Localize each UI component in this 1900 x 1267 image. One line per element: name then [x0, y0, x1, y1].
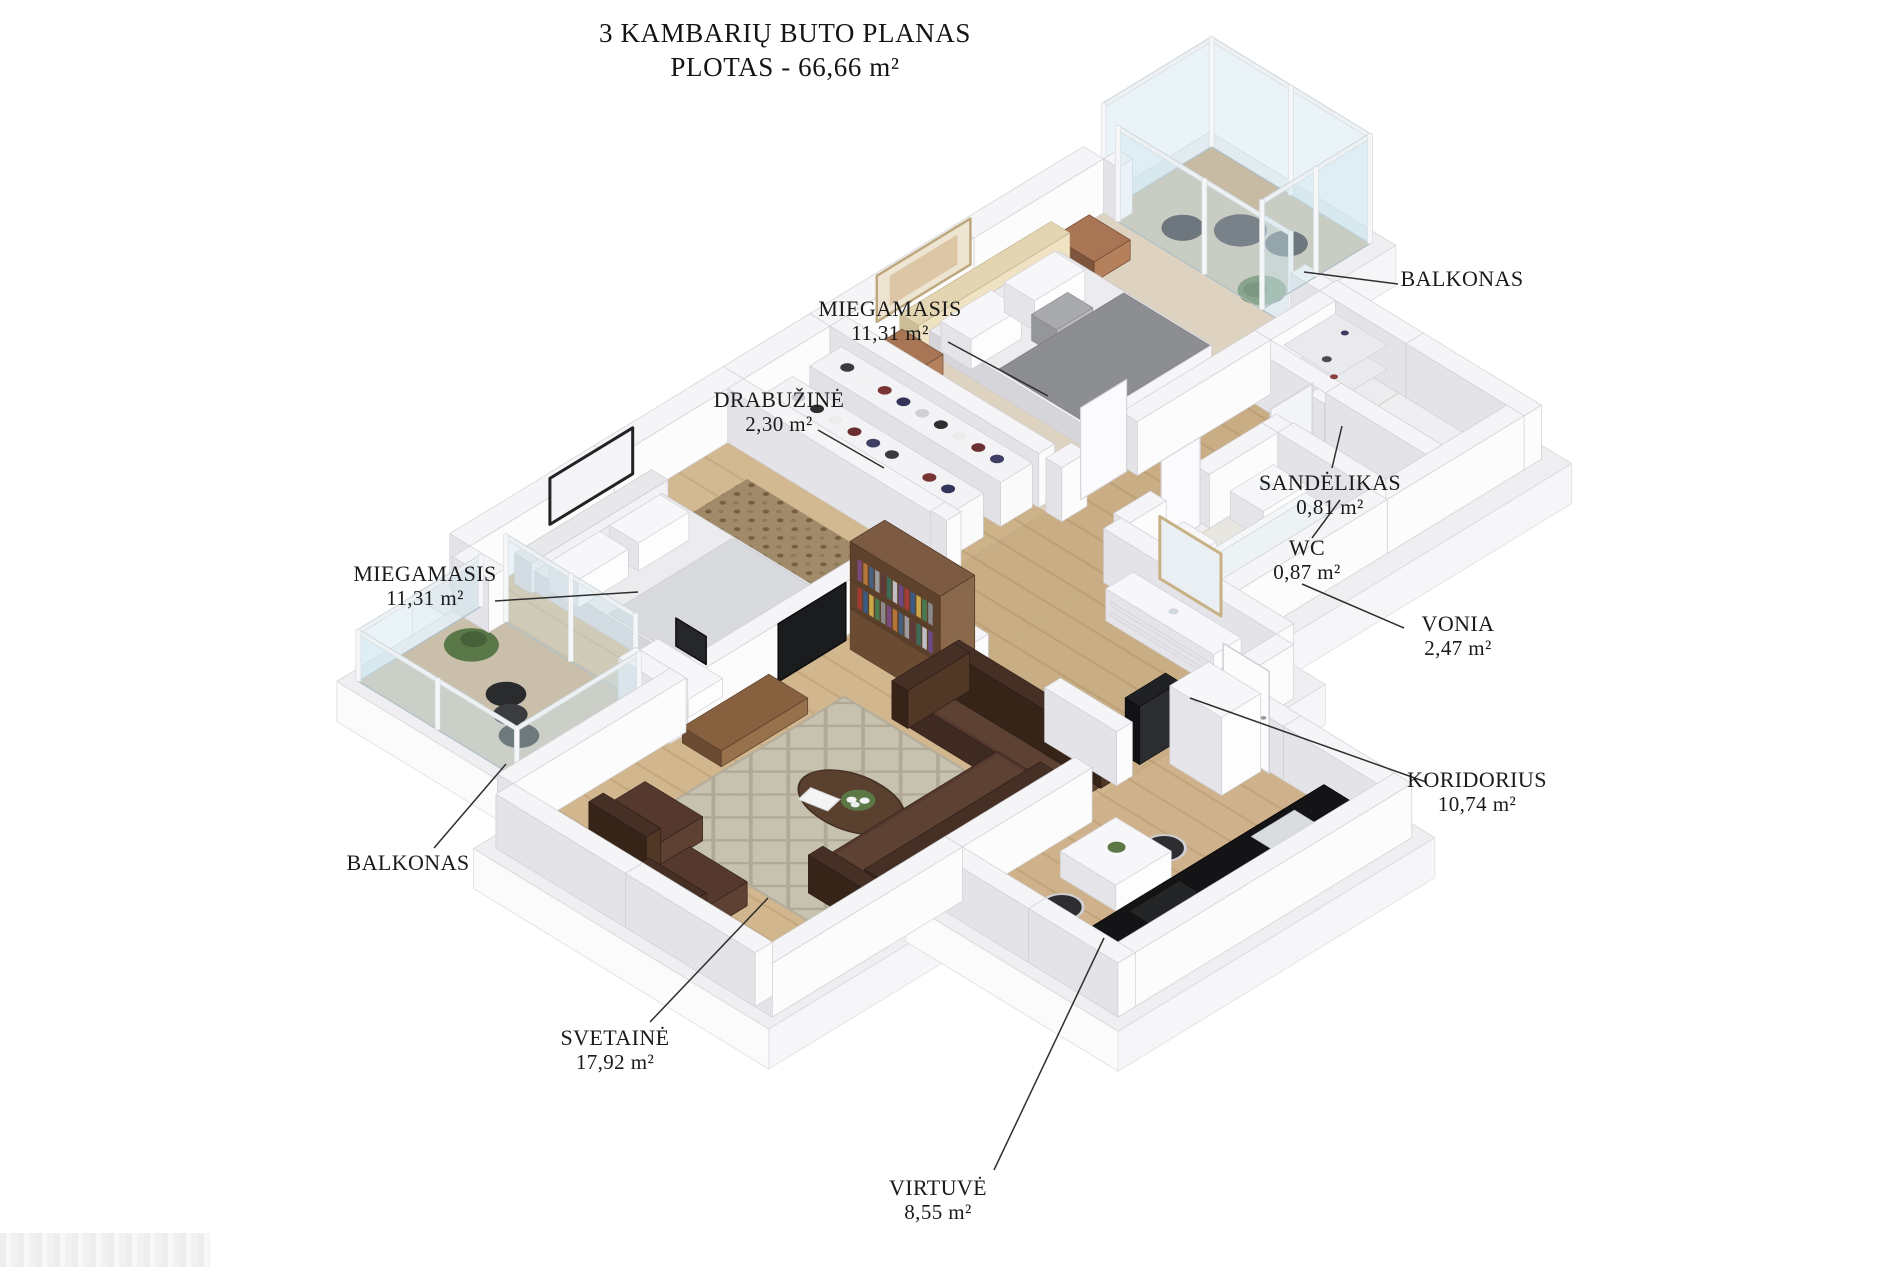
room-area: 11,31 m² [760, 321, 1020, 346]
room-name: BALKONAS [1332, 266, 1592, 291]
room-area: 10,74 m² [1347, 792, 1607, 817]
plan-title: 3 KAMBARIŲ BUTO PLANAS PLOTAS - 66,66 m² [485, 16, 1085, 84]
watermark [0, 1233, 210, 1267]
room-label-drabuzine: DRABUŽINĖ 2,30 m² [649, 387, 909, 437]
room-label-virtuve: VIRTUVĖ 8,55 m² [808, 1175, 1068, 1225]
room-name: SANDĖLIKAS [1200, 470, 1460, 495]
room-name: KORIDORIUS [1347, 767, 1607, 792]
room-area: 17,92 m² [485, 1050, 745, 1075]
room-area: 8,55 m² [808, 1200, 1068, 1225]
room-name: DRABUŽINĖ [649, 387, 909, 412]
floor-plan-page: 3 KAMBARIŲ BUTO PLANAS PLOTAS - 66,66 m²… [0, 0, 1900, 1267]
room-area: 2,30 m² [649, 412, 909, 437]
floor-plan-canvas [0, 0, 1900, 1267]
room-area: 11,31 m² [295, 586, 555, 611]
room-name: SVETAINĖ [485, 1025, 745, 1050]
room-label-wc: WC 0,87 m² [1177, 535, 1437, 585]
room-label-svetaine: SVETAINĖ 17,92 m² [485, 1025, 745, 1075]
room-area: 0,81 m² [1200, 495, 1460, 520]
room-name: MIEGAMASIS [760, 296, 1020, 321]
room-label-koridorius: KORIDORIUS 10,74 m² [1347, 767, 1607, 817]
room-name: MIEGAMASIS [295, 561, 555, 586]
room-label-sandelikas: SANDĖLIKAS 0,81 m² [1200, 470, 1460, 520]
plan-title-line1: 3 KAMBARIŲ BUTO PLANAS [485, 16, 1085, 50]
room-name: VIRTUVĖ [808, 1175, 1068, 1200]
room-name: WC [1177, 535, 1437, 560]
room-area: 0,87 m² [1177, 560, 1437, 585]
room-name: VONIA [1328, 611, 1588, 636]
room-label-balkonas-2: BALKONAS [278, 850, 538, 875]
room-label-miegamasis-2: MIEGAMASIS 11,31 m² [295, 561, 555, 611]
room-label-miegamasis-1: MIEGAMASIS 11,31 m² [760, 296, 1020, 346]
room-name: BALKONAS [278, 850, 538, 875]
room-label-balkonas-1: BALKONAS [1332, 266, 1592, 291]
plan-title-line2: PLOTAS - 66,66 m² [485, 50, 1085, 84]
room-area: 2,47 m² [1328, 636, 1588, 661]
room-label-vonia: VONIA 2,47 m² [1328, 611, 1588, 661]
